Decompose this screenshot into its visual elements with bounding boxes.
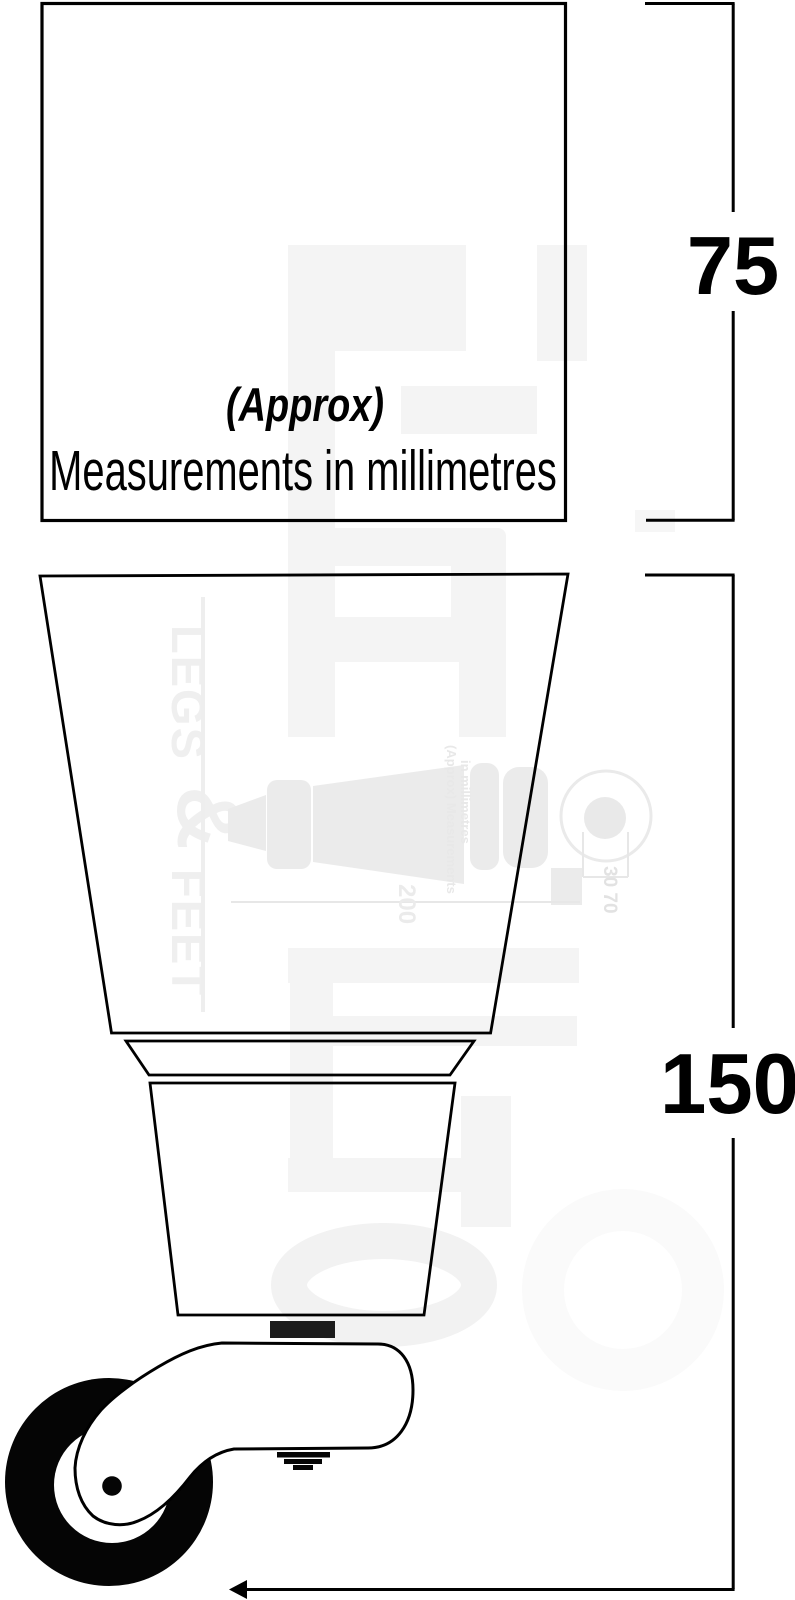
svg-text:in millimetres: in millimetres bbox=[458, 760, 473, 844]
svg-text:(Approx) Measurements: (Approx) Measurements bbox=[444, 745, 459, 894]
svg-text:LEGS: LEGS bbox=[162, 625, 215, 761]
svg-text:30 70: 30 70 bbox=[599, 866, 620, 914]
svg-text:(Approx): (Approx) bbox=[226, 379, 384, 432]
svg-text:FEET: FEET bbox=[162, 869, 215, 997]
svg-text:75: 75 bbox=[687, 219, 779, 312]
svg-text:150: 150 bbox=[660, 1036, 795, 1131]
svg-text:Measurements in millimetres: Measurements in millimetres bbox=[49, 439, 557, 503]
svg-text:200: 200 bbox=[393, 884, 420, 924]
